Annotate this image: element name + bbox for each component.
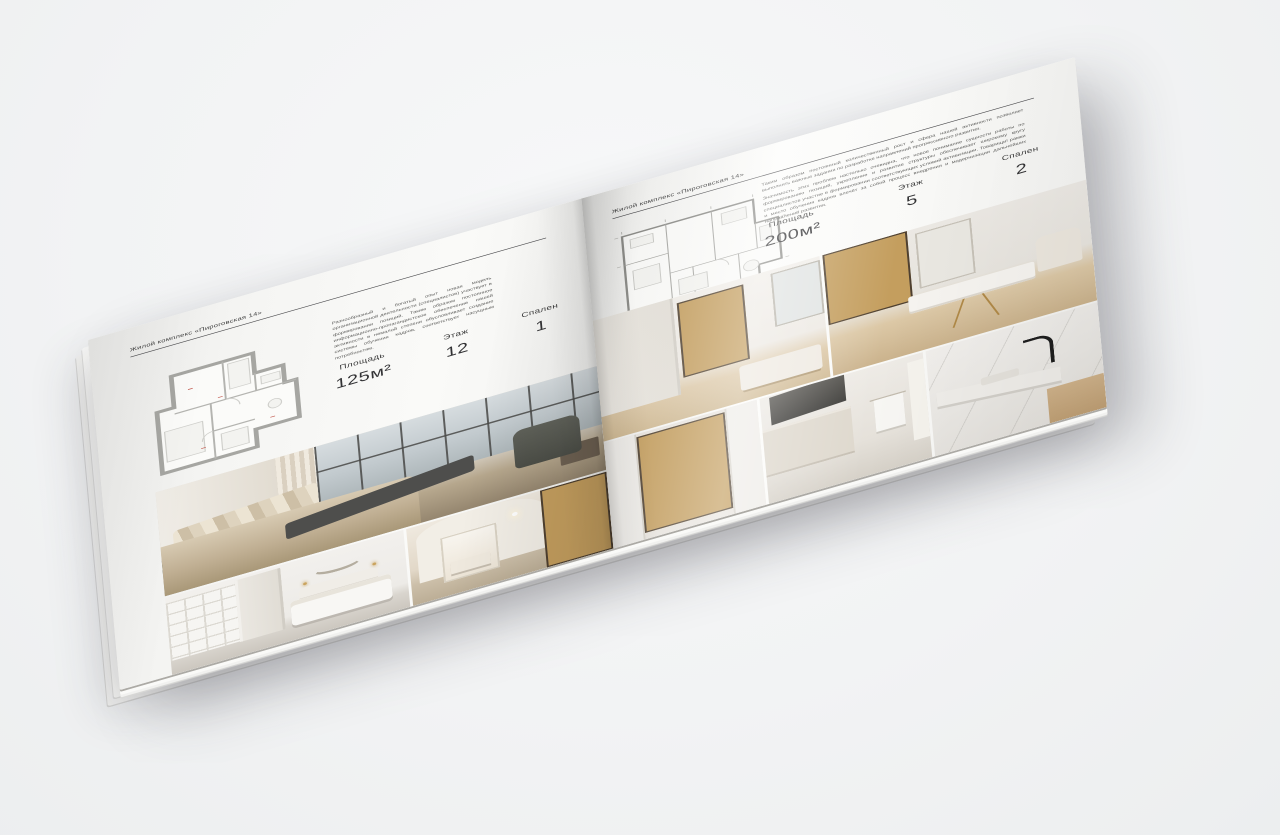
wardrobe-lit-shelves bbox=[636, 412, 733, 533]
scene: Жилой комплекс «Пироговская 14» bbox=[0, 0, 1280, 835]
brochure-spread: Жилой комплекс «Пироговская 14» bbox=[88, 57, 1107, 690]
study-bookcase bbox=[822, 231, 913, 325]
spec-floor-value: 5 bbox=[899, 190, 925, 212]
vanity-black-faucet bbox=[1023, 332, 1055, 370]
study-desk-brass-leg bbox=[952, 297, 965, 329]
lounge-display-case bbox=[677, 284, 750, 378]
study-desk-brass-leg bbox=[981, 292, 1000, 316]
bathroom-towel bbox=[873, 392, 905, 432]
open-pages: Жилой комплекс «Пироговская 14» bbox=[88, 57, 1107, 690]
white-bedroom-wardrobe bbox=[234, 568, 285, 642]
lounge-mirror bbox=[770, 260, 825, 327]
lounge-white-cabinet bbox=[593, 298, 681, 417]
spec-floor: Этаж 12 bbox=[443, 327, 470, 361]
white-bedroom-shelving bbox=[166, 584, 240, 661]
left-page: Жилой комплекс «Пироговская 14» bbox=[88, 199, 613, 690]
white-bedroom-sconce bbox=[372, 562, 376, 566]
spec-bedrooms: Спален 1 bbox=[521, 302, 560, 339]
study-window bbox=[915, 218, 975, 289]
study-chair bbox=[1035, 226, 1083, 273]
right-page: Жилой комплекс «Пироговская 14» bbox=[581, 57, 1106, 548]
spec-floor-value: 12 bbox=[444, 339, 470, 361]
spec-floor: Этаж 5 bbox=[898, 178, 925, 212]
